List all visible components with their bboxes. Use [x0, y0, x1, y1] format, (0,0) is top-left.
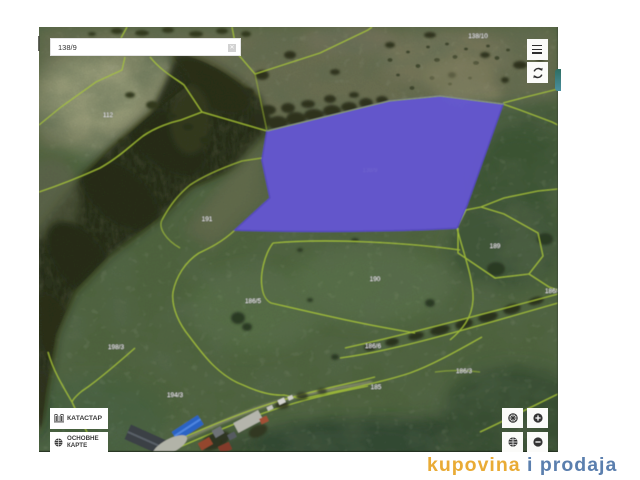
svg-text:186/3: 186/3 — [456, 368, 472, 375]
svg-text:191: 191 — [202, 216, 213, 223]
svg-text:112: 112 — [103, 112, 114, 119]
svg-text:186/5: 186/5 — [245, 298, 261, 305]
svg-text:186/6: 186/6 — [365, 343, 381, 350]
svg-text:189: 189 — [490, 243, 501, 250]
svg-text:185: 185 — [371, 384, 382, 391]
svg-text:194/3: 194/3 — [167, 392, 183, 399]
svg-text:198/3: 198/3 — [108, 344, 124, 351]
svg-text:138/9: 138/9 — [362, 168, 378, 174]
svg-text:138/10: 138/10 — [468, 33, 488, 40]
svg-text:186/4: 186/4 — [545, 288, 561, 295]
svg-text:190: 190 — [370, 276, 381, 283]
